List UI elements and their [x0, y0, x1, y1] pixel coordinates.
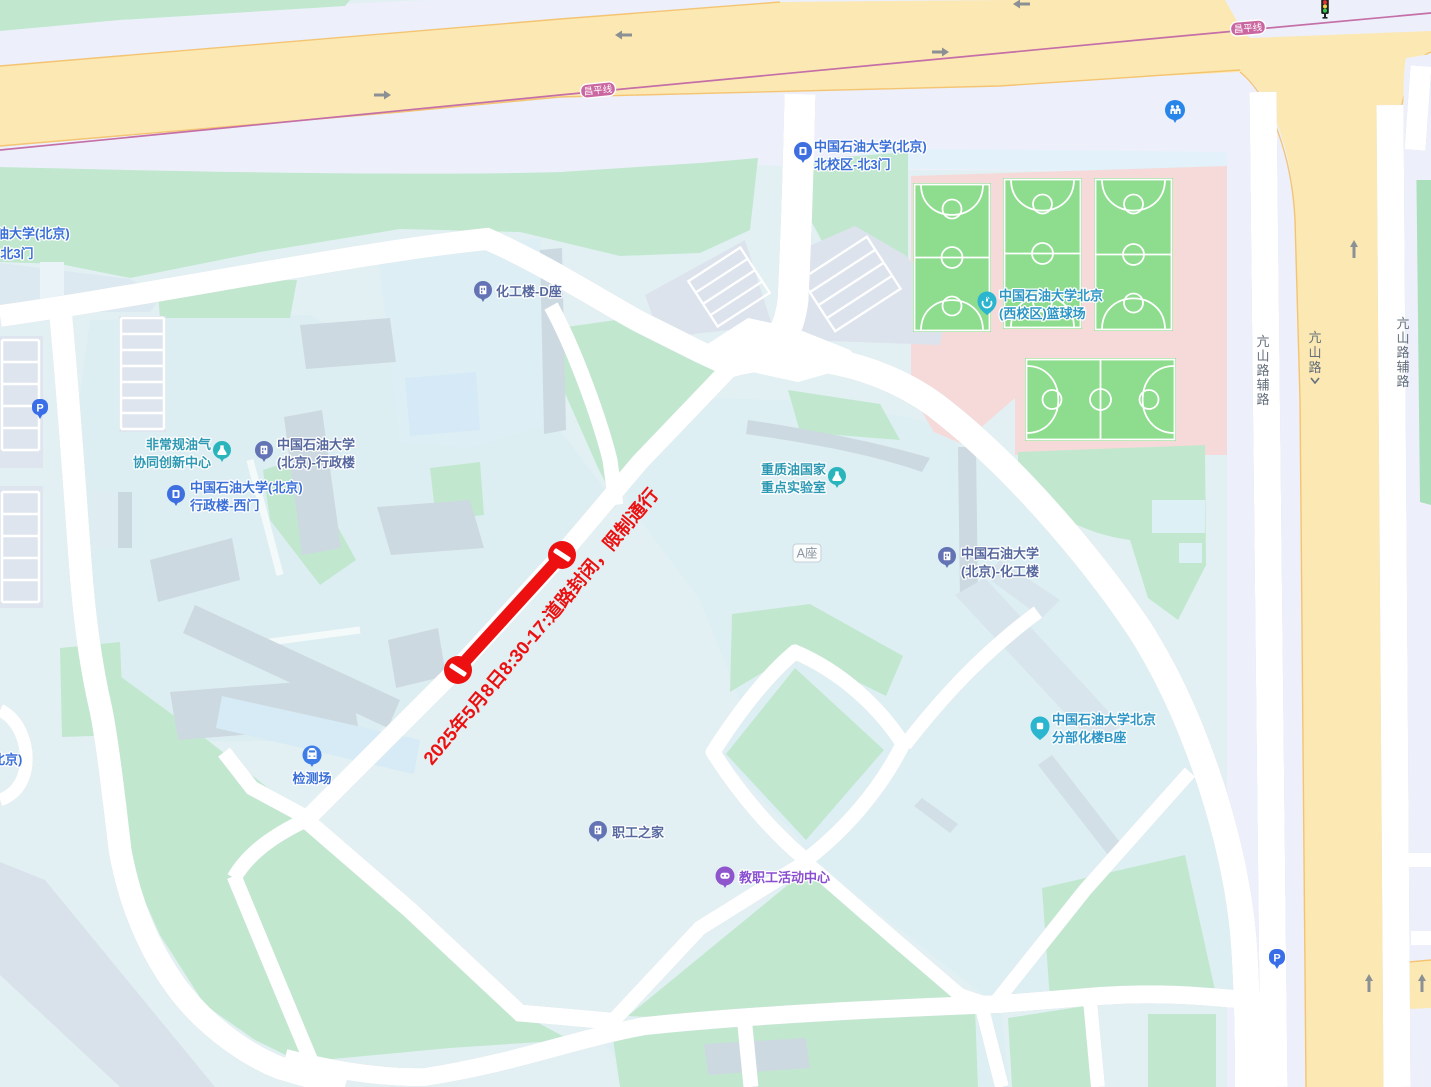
svg-text:昌平线: 昌平线 [1233, 21, 1263, 35]
svg-text:化工楼-D座: 化工楼-D座 [496, 284, 562, 299]
svg-text:行政楼-西门: 行政楼-西门 [189, 498, 259, 513]
svg-text:中国石油大学(北京): 中国石油大学(北京) [190, 480, 303, 495]
svg-text:非常规油气: 非常规油气 [146, 437, 211, 452]
svg-text:分部化楼B座: 分部化楼B座 [1052, 730, 1126, 745]
svg-text:重点实验室: 重点实验室 [761, 480, 826, 495]
svg-text:职工之家: 职工之家 [612, 825, 665, 840]
svg-text:油大学(北京): 油大学(北京) [0, 226, 70, 241]
svg-text:-北3门: -北3门 [0, 246, 34, 261]
svg-text:协同创新中心: 协同创新中心 [133, 455, 211, 470]
svg-text:P: P [1273, 953, 1280, 965]
svg-text:(北京)-化工楼: (北京)-化工楼 [961, 564, 1039, 579]
svg-text:(北京)-行政楼: (北京)-行政楼 [277, 455, 355, 470]
svg-text:检测场: 检测场 [292, 771, 331, 786]
svg-text:重质油国家: 重质油国家 [761, 462, 827, 477]
svg-text:亢山路: 亢山路 [1308, 330, 1321, 375]
svg-text:北校区-北3门: 北校区-北3门 [814, 157, 891, 172]
svg-text:亢山路辅路: 亢山路辅路 [1396, 316, 1409, 389]
svg-text:P: P [36, 403, 43, 415]
svg-text:亢山路辅路: 亢山路辅路 [1256, 334, 1269, 407]
svg-text:中国石油大学: 中国石油大学 [277, 437, 355, 452]
svg-text:教职工活动中心: 教职工活动中心 [738, 870, 830, 885]
svg-text:北京): 北京) [0, 752, 22, 767]
svg-text:A座: A座 [797, 546, 818, 561]
svg-text:中国石油大学北京: 中国石油大学北京 [999, 288, 1103, 303]
svg-text:(西校区)篮球场: (西校区)篮球场 [999, 306, 1086, 321]
svg-text:中国石油大学: 中国石油大学 [961, 546, 1039, 561]
svg-text:中国石油大学(北京): 中国石油大学(北京) [814, 139, 927, 154]
svg-text:中国石油大学北京: 中国石油大学北京 [1052, 712, 1156, 727]
